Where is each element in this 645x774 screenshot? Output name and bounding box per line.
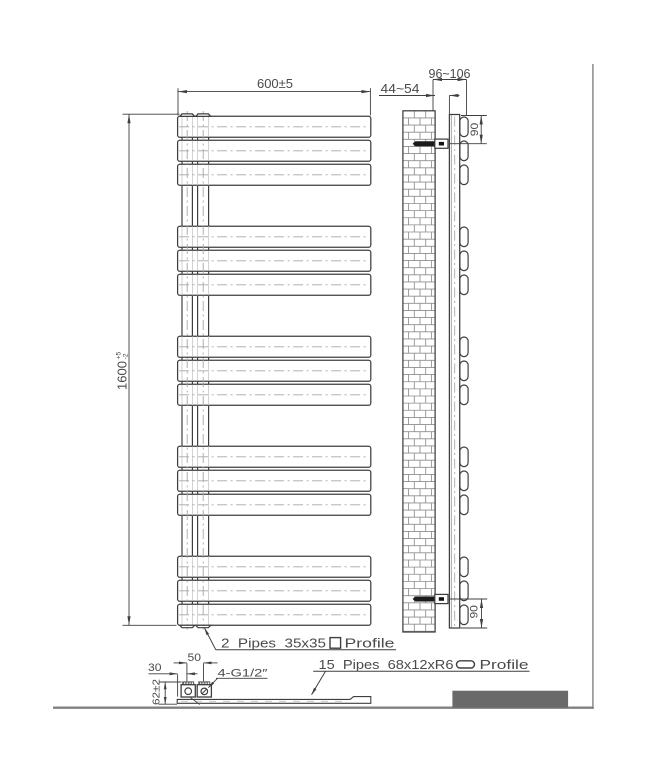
svg-text:Profile: Profile — [480, 657, 529, 672]
svg-text:90: 90 — [469, 123, 481, 137]
svg-text:Profile: Profile — [345, 636, 395, 651]
svg-text:50: 50 — [188, 652, 202, 664]
svg-text:1600: 1600 — [116, 361, 130, 390]
svg-text:30: 30 — [148, 662, 162, 674]
svg-text:600±5: 600±5 — [257, 77, 293, 91]
svg-text:4-G1/2″: 4-G1/2″ — [218, 667, 268, 679]
svg-text:44~54: 44~54 — [381, 82, 420, 96]
svg-text:15 Pipes 68x12xR6: 15 Pipes 68x12xR6 — [319, 657, 454, 672]
svg-text:-2: -2 — [122, 353, 129, 359]
svg-text:2 Pipes 35x35: 2 Pipes 35x35 — [221, 636, 326, 651]
svg-text:96~106: 96~106 — [429, 67, 471, 81]
svg-text:62±2: 62±2 — [152, 679, 163, 705]
svg-text:90: 90 — [468, 605, 480, 619]
